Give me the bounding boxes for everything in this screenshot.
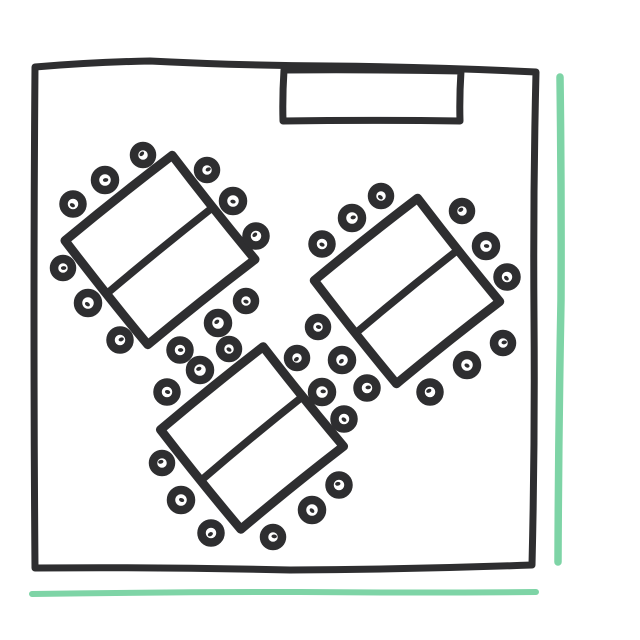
chair-11 [208, 313, 228, 333]
chair-14 [342, 208, 362, 228]
chair-33-dot [207, 531, 214, 537]
chair-30-dot [341, 416, 348, 422]
chair-32-dot [178, 497, 184, 503]
chair-10-dot [243, 299, 249, 304]
chair-8 [78, 293, 98, 313]
chair-30 [335, 410, 354, 429]
chair-24-dot [365, 385, 371, 389]
chair-26 [190, 360, 210, 380]
chair-6 [247, 227, 266, 246]
chair-20 [457, 355, 477, 375]
chair-3-dot [69, 202, 76, 208]
chair-18 [498, 268, 517, 287]
chair-13-dot [377, 194, 384, 200]
chair-22-dot [316, 325, 322, 330]
chair-36-dot [335, 481, 341, 486]
chair-15-dot [319, 242, 325, 248]
chair-29-dot [320, 389, 325, 393]
floor-plan-illustration [0, 0, 640, 640]
chair-25-dot [226, 347, 233, 353]
chair-27-dot [164, 389, 170, 394]
stage-or-door-rect [283, 70, 461, 121]
chair-36 [330, 476, 349, 495]
chair-27 [158, 383, 177, 402]
chair-3 [64, 195, 83, 214]
chair-35 [302, 500, 322, 520]
chair-29 [312, 382, 332, 402]
chair-23 [332, 350, 352, 370]
chair-35-dot [309, 507, 316, 513]
chair-5-dot [230, 199, 236, 204]
chair-7-dot [61, 266, 67, 270]
bottom-accent-line [32, 592, 536, 594]
chair-6-dot [252, 232, 259, 238]
chair-2 [95, 170, 115, 190]
chair-17 [476, 236, 496, 256]
chair-12 [171, 341, 190, 360]
chair-9-dot [118, 337, 124, 342]
chair-9 [111, 331, 130, 350]
chair-4 [198, 161, 216, 179]
table-3-divider [201, 397, 303, 480]
chair-1 [134, 146, 152, 164]
chair-23-dot [338, 358, 345, 364]
chair-21-dot [426, 388, 433, 394]
chair-24 [358, 379, 377, 398]
right-accent-line [558, 77, 561, 562]
chair-15 [313, 235, 332, 254]
chair-28-dot [293, 356, 300, 362]
chair-8-dot [84, 301, 91, 307]
chair-32 [171, 490, 191, 510]
chair-7 [54, 259, 72, 277]
chair-14-dot [350, 215, 356, 220]
chair-28 [288, 349, 306, 367]
chair-17-dot [484, 244, 490, 248]
chair-34 [264, 528, 282, 546]
chair-25 [220, 340, 238, 358]
chair-19-dot [501, 340, 507, 345]
chair-18-dot [503, 275, 510, 281]
chair-2-dot [103, 178, 109, 183]
chair-21 [421, 383, 440, 402]
chair-12-dot [178, 348, 184, 352]
chair-4-dot [205, 167, 211, 173]
chair-10 [237, 292, 255, 310]
chair-19 [494, 334, 512, 352]
chair-26-dot [196, 366, 202, 371]
chair-16 [453, 202, 471, 220]
chair-13 [372, 187, 390, 205]
chair-22 [309, 318, 327, 336]
chair-33 [202, 524, 221, 543]
chair-5 [223, 191, 243, 211]
chair-20-dot [464, 363, 471, 369]
table-2-divider [356, 250, 459, 332]
floor-plan-canvas [0, 0, 640, 640]
chair-31-dot [158, 459, 164, 464]
chair-11-dot [213, 319, 220, 325]
table-1-divider [107, 208, 214, 293]
chair-34-dot [271, 534, 277, 538]
chair-31 [153, 454, 171, 472]
